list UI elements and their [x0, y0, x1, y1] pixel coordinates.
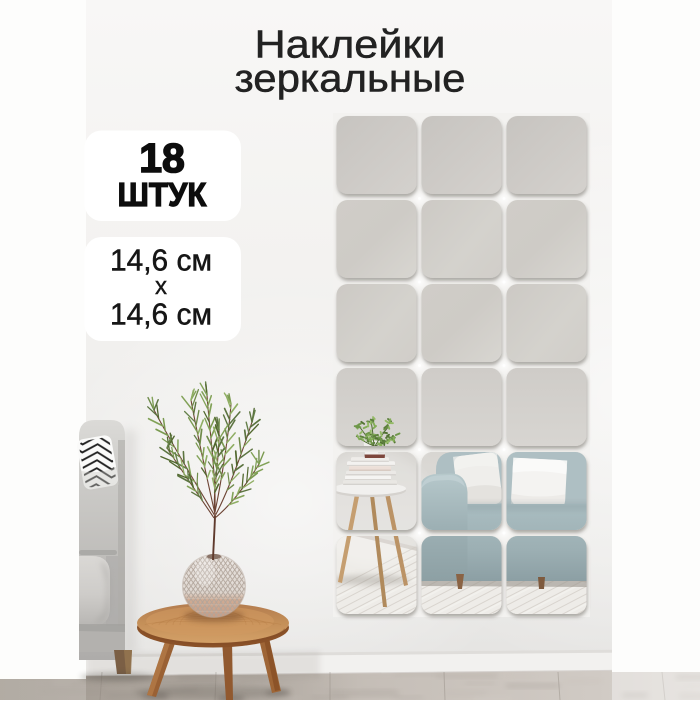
svg-text:18: 18 [139, 135, 185, 181]
svg-text:14,6 см: 14,6 см [110, 297, 212, 332]
svg-text:зеркальные: зеркальные [235, 58, 466, 101]
svg-text:ШТУК: ШТУК [118, 176, 208, 213]
